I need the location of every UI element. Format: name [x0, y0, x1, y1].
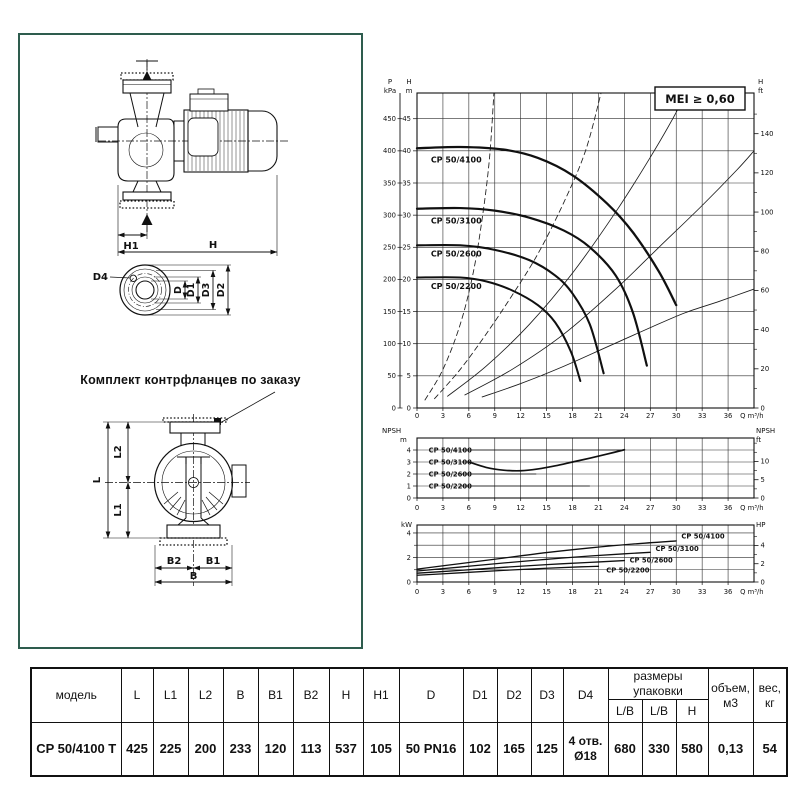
weight-header-line2: кг [765, 696, 775, 710]
cell-D4: 4 отв. Ø18 [563, 723, 608, 777]
pressure-tick-label: 50 [387, 372, 396, 380]
aux-curve [447, 93, 685, 396]
power-chart: 0369121518212427303336Q m³/h024024HPkWCP… [378, 516, 800, 611]
pressure-tick-label: 0 [392, 404, 396, 412]
col-header-D3: D3 [531, 668, 563, 723]
curve-label: CP 50/3100 [431, 217, 482, 226]
y-left-tick-label: 25 [402, 244, 411, 252]
flange-outer-circle [120, 265, 170, 315]
x-axis-title: Q m³/h [740, 588, 763, 596]
d4-leader [110, 277, 131, 278]
y-right-tick-label: 0 [761, 494, 765, 502]
x-tick-label: 36 [724, 588, 733, 596]
y-axis-title: HP [756, 521, 766, 529]
y-axis-title: NPSH [756, 427, 775, 435]
dim-label-b1: B1 [206, 556, 221, 567]
x-tick-label: 36 [724, 412, 733, 420]
x-tick-label: 15 [542, 588, 551, 596]
side-port [232, 465, 246, 497]
x-tick-label: 3 [441, 412, 445, 420]
col-header-H: H [329, 668, 363, 723]
x-axis-title: Q m³/h [740, 412, 763, 420]
col-header-pack-lb1: L/B [608, 700, 642, 723]
y-right-tick-label: 4 [761, 542, 765, 550]
cell-d4-line1: 4 отв. [569, 734, 603, 748]
y-axis-title: H [406, 78, 411, 86]
y-axis-title: H [758, 78, 763, 86]
y-left-tick-label: 20 [402, 276, 411, 284]
x-tick-label: 33 [698, 412, 707, 420]
curve-CP-50-2600 [417, 245, 604, 373]
col-header-D1: D1 [463, 668, 497, 723]
y-left-tick-label: 2 [407, 470, 411, 478]
y-left-tick-label: 4 [407, 446, 411, 454]
extension-lines [118, 175, 277, 256]
head-capacity-chart: 0369121518212427303336Q m³/h051015202530… [378, 73, 800, 425]
y-left-tick-label: 0 [407, 578, 411, 586]
cell-L1: 225 [153, 723, 188, 777]
y-left-tick-label: 40 [402, 147, 411, 155]
x-tick-label: 30 [672, 588, 681, 596]
pressure-tick-label: 300 [383, 211, 396, 219]
x-tick-label: 0 [415, 588, 419, 596]
cell-H1: 105 [363, 723, 399, 777]
curve-label: CP 50/4100 [431, 155, 482, 164]
col-header-B2: B2 [293, 668, 329, 723]
x-tick-label: 36 [724, 504, 733, 512]
col-header-B: B [223, 668, 258, 723]
dim-label-d1: D1 [186, 283, 197, 298]
x-tick-label: 24 [620, 412, 629, 420]
x-tick-label: 27 [646, 504, 655, 512]
dim-label-d4: D4 [93, 272, 108, 283]
x-tick-label: 0 [415, 504, 419, 512]
col-header-B1: B1 [258, 668, 293, 723]
y-right-tick-label: 5 [761, 476, 765, 484]
cell-pack-lb2: 330 [642, 723, 676, 777]
col-header-pack-lb2: L/B [642, 700, 676, 723]
terminal-box-cap [198, 89, 214, 94]
pressure-tick-label: 150 [383, 308, 396, 316]
x-tick-label: 3 [441, 588, 445, 596]
y-right-tick-label: 60 [761, 287, 770, 295]
curve-label: CP 50/3100 [655, 545, 698, 553]
pump-body [118, 119, 174, 181]
col-header-packaging: размеры упаковки [608, 668, 708, 700]
cell-D: 50 PN16 [399, 723, 463, 777]
y-right-tick-label: 120 [761, 169, 774, 177]
curve-label: CP 50/2600 [431, 249, 482, 258]
dim-label-l1: L1 [113, 503, 124, 516]
col-header-L1: L1 [153, 668, 188, 723]
col-header-model: модель [31, 668, 121, 723]
y-left-tick-label: 0 [407, 494, 411, 502]
pressure-tick-label: 100 [383, 340, 396, 348]
col-header-pack-h: H [676, 700, 708, 723]
x-tick-label: 6 [467, 504, 471, 512]
x-tick-label: 21 [594, 588, 603, 596]
pump-datasheet-page: H1 H D4 D D1 D3 D2 [0, 0, 800, 800]
dim-label-d: D [173, 286, 184, 294]
top-flange [170, 422, 220, 433]
x-tick-label: 0 [415, 412, 419, 420]
bore-circle [136, 281, 154, 299]
y-axis-title: kW [401, 521, 412, 529]
callout-label: CP 50/4100 [429, 446, 472, 454]
y-right-tick-label: 0 [761, 404, 765, 412]
dim-label-l: L [92, 476, 103, 483]
y-right-tick-label: 80 [761, 248, 770, 256]
y-right-tick-label: 10 [761, 458, 770, 466]
dim-label-b2: B2 [167, 556, 182, 567]
x-axis-title: Q m³/h [740, 504, 763, 512]
cell-B1: 120 [258, 723, 293, 777]
cell-L2: 200 [188, 723, 223, 777]
cell-L: 425 [121, 723, 153, 777]
col-header-D4: D4 [563, 668, 608, 723]
flow-arrow-bottom-icon [142, 214, 153, 225]
callout-label: CP 50/2200 [429, 482, 472, 490]
x-tick-label: 12 [516, 588, 525, 596]
x-tick-label: 9 [493, 504, 497, 512]
y-left-tick-label: 2 [407, 554, 411, 562]
weight-header-line1: вес, [759, 681, 781, 695]
col-header-L: L [121, 668, 153, 723]
bottom-flange [167, 525, 220, 538]
x-tick-label: 27 [646, 588, 655, 596]
curve-CP-50-2200 [417, 277, 580, 381]
curve-label: CP 50/2600 [630, 557, 673, 565]
cell-D3: 125 [531, 723, 563, 777]
flow-mark-top [136, 61, 158, 70]
x-tick-label: 33 [698, 504, 707, 512]
y-axis-title: NPSH [382, 427, 401, 435]
col-header-volume: объем, м3 [708, 668, 753, 723]
y-right-tick-label: 20 [761, 365, 770, 373]
x-tick-label: 6 [467, 588, 471, 596]
cell-D1: 102 [463, 723, 497, 777]
x-tick-label: 15 [542, 412, 551, 420]
x-tick-label: 24 [620, 588, 629, 596]
y-left-tick-label: 5 [407, 372, 411, 380]
counter-flange-note: Комплект контрфланцев по заказу [26, 373, 355, 387]
dim-label-d3: D3 [201, 283, 212, 298]
col-header-D2: D2 [497, 668, 531, 723]
x-tick-label: 27 [646, 412, 655, 420]
pressure-tick-label: 450 [383, 115, 396, 123]
note-leader [220, 392, 275, 423]
y-left-tick-label: 45 [402, 115, 411, 123]
cell-B: 233 [223, 723, 258, 777]
x-tick-label: 18 [568, 588, 577, 596]
callout-label: CP 50/3100 [429, 458, 472, 466]
cell-H: 537 [329, 723, 363, 777]
col-header-L2: L2 [188, 668, 223, 723]
x-tick-label: 12 [516, 412, 525, 420]
y-left-tick-label: 3 [407, 458, 411, 466]
dim-label-d2: D2 [216, 283, 227, 298]
y-right-tick-label: 0 [761, 578, 765, 586]
y-left-tick-label: 35 [402, 179, 411, 187]
pressure-tick-label: 250 [383, 244, 396, 252]
npsh-chart: 0369121518212427303336Q m³/h012340510NPS… [378, 420, 800, 520]
y-left-tick-label: 4 [407, 529, 411, 537]
suction-flange [123, 80, 171, 93]
y-left-tick-label: 15 [402, 308, 411, 316]
col-header-D: D [399, 668, 463, 723]
x-tick-label: 3 [441, 504, 445, 512]
pressure-tick-label: 350 [383, 179, 396, 187]
y-left-tick-label: 10 [402, 340, 411, 348]
x-tick-label: 24 [620, 504, 629, 512]
pressure-tick-label: 400 [383, 147, 396, 155]
y-axis-title: m [406, 87, 413, 95]
callout-label: CP 50/2600 [429, 470, 472, 478]
dimensions-table: модель L L1 L2 B B1 B2 H H1 D D1 D2 D3 D… [30, 667, 788, 777]
col-header-weight: вес, кг [753, 668, 787, 723]
cell-pack-h: 580 [676, 723, 708, 777]
x-tick-label: 18 [568, 504, 577, 512]
y-right-tick-label: 140 [761, 130, 774, 138]
cell-model: CP 50/4100 T [31, 723, 121, 777]
x-tick-label: 6 [467, 412, 471, 420]
aux-curve [465, 151, 754, 395]
pump-front-view-drawing: L L2 L1 B2 B1 B [28, 390, 348, 638]
x-tick-label: 21 [594, 504, 603, 512]
x-tick-label: 9 [493, 588, 497, 596]
y-axis-title: ft [758, 87, 763, 95]
motor-window [188, 118, 218, 156]
y-axis-title: kPa [384, 87, 396, 95]
aux-curve [482, 289, 754, 397]
x-tick-label: 33 [698, 588, 707, 596]
bolt-circle [129, 274, 162, 307]
x-tick-label: 18 [568, 412, 577, 420]
y-axis-title: m [400, 436, 407, 444]
cell-d4-line2: Ø18 [574, 749, 597, 763]
y-left-tick-label: 0 [407, 404, 411, 412]
table-row: CP 50/4100 T 425 225 200 233 120 113 537… [31, 723, 787, 777]
y-right-tick-label: 2 [761, 560, 765, 568]
x-tick-label: 30 [672, 412, 681, 420]
dim-label-h: H [209, 240, 217, 251]
terminal-box [190, 94, 228, 111]
delivery-flange [123, 192, 171, 200]
gauge-port [98, 127, 118, 142]
x-tick-label: 9 [493, 412, 497, 420]
cell-pack-lb1: 680 [608, 723, 642, 777]
volume-header-line2: м3 [723, 696, 738, 710]
x-tick-label: 15 [542, 504, 551, 512]
x-tick-label: 12 [516, 504, 525, 512]
cell-weight: 54 [753, 723, 787, 777]
curve-label: CP 50/2200 [431, 282, 482, 291]
cell-volume: 0,13 [708, 723, 753, 777]
dim-label-l2: L2 [113, 445, 124, 458]
y-axis-title: ft [756, 436, 761, 444]
pump-side-view-drawing: H1 H [30, 55, 350, 270]
cell-B2: 113 [293, 723, 329, 777]
y-left-tick-label: 1 [407, 482, 411, 490]
flange-face-drawing: D4 D D1 D3 D2 [30, 263, 350, 333]
y-left-tick-label: 30 [402, 211, 411, 219]
col-header-H1: H1 [363, 668, 399, 723]
cell-D2: 165 [497, 723, 531, 777]
aux-curve [425, 93, 494, 400]
y-right-tick-label: 100 [761, 208, 774, 216]
curve-label: CP 50/2200 [606, 566, 649, 574]
dim-label-h1: H1 [123, 241, 138, 252]
mei-badge-label: MEI ≥ 0,60 [665, 92, 735, 106]
y-right-tick-label: 40 [761, 326, 770, 334]
curve-label: CP 50/4100 [681, 532, 724, 540]
dim-label-b: B [190, 571, 198, 582]
y-axis-title: P [388, 78, 392, 86]
x-tick-label: 21 [594, 412, 603, 420]
x-tick-label: 30 [672, 504, 681, 512]
volume-header-line1: объем, [711, 681, 750, 695]
pressure-tick-label: 200 [383, 276, 396, 284]
drawings-panel: H1 H D4 D D1 D3 D2 [18, 33, 363, 649]
